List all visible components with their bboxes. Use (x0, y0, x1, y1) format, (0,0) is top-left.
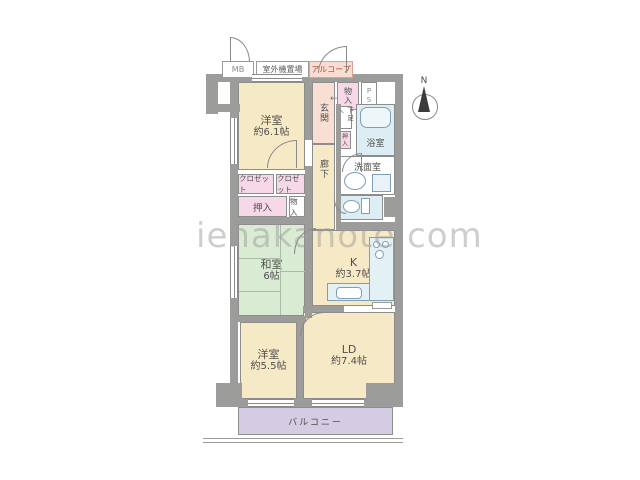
room-name: LD (342, 343, 357, 356)
compass: N (404, 76, 444, 124)
refrigerator-space-icon (372, 302, 392, 309)
door-arc-icon (230, 37, 250, 62)
room-name: 玄関 (317, 103, 330, 123)
room-name: 洋室 (261, 114, 283, 127)
duct-shaft (384, 197, 395, 217)
room-name: 廊下 (317, 159, 330, 179)
door-arc-entrance-icon (318, 46, 347, 73)
room-name: 浴室 (366, 136, 384, 149)
room-size: 6帖 (263, 271, 279, 283)
oshiire: 押入 (238, 196, 287, 217)
room-western-2: 洋室 約5.5帖 (240, 322, 297, 399)
window (252, 74, 302, 82)
north-arrow-icon (418, 86, 430, 112)
balcony-rail (203, 438, 403, 443)
washing-machine-icon (372, 174, 391, 192)
storage-label: 物入 (290, 196, 304, 218)
floorplan-canvas: 洋室 約6.1帖 玄関 廊下 物入 PS 下足入 押入 浴室 洗面室 クロゼット… (0, 0, 640, 480)
closet-1: クロゼット (238, 174, 274, 194)
meter-box: MB (222, 61, 254, 78)
storage-label: クロゼット (239, 173, 273, 195)
room-size: 約5.5帖 (251, 361, 287, 373)
bathtub-icon (360, 107, 391, 128)
room-entrance: 玄関 (312, 82, 335, 144)
wall (230, 316, 306, 322)
storage-2: 物入 (289, 196, 305, 217)
wall (305, 82, 312, 140)
room-name: K (350, 256, 357, 269)
window-balcony-door (312, 399, 364, 407)
room-size: 約6.1帖 (254, 127, 290, 139)
window (230, 118, 238, 164)
meter-box-label: MB (232, 65, 244, 74)
north-label: N (404, 76, 444, 86)
watermark: ienakanote.com (196, 216, 496, 256)
toilet-icon (343, 200, 360, 213)
closet-2: クロゼット (276, 174, 305, 194)
storage-label: PS (365, 87, 373, 105)
storage-label: 押入 (253, 200, 272, 214)
tatami-line (239, 291, 280, 292)
tatami-line (280, 271, 305, 272)
wall (366, 383, 403, 407)
room-name: 洋室 (258, 348, 280, 361)
room-name: バルコニー (288, 415, 343, 428)
kitchen-sink-icon (336, 287, 362, 299)
storage-label: 物入 (343, 87, 354, 105)
room-size: 約3.7帖 (336, 269, 372, 281)
balcony: バルコニー (238, 407, 393, 435)
room-size: 約7.4帖 (331, 356, 367, 368)
toilet-tank-icon (361, 198, 370, 214)
tatami-line (239, 258, 280, 259)
window-balcony-door (248, 399, 294, 407)
wall (216, 383, 242, 407)
entrance-arrow-icon: ← (330, 94, 338, 104)
storage-label: クロゼット (277, 173, 304, 195)
sink-icon (344, 172, 366, 190)
